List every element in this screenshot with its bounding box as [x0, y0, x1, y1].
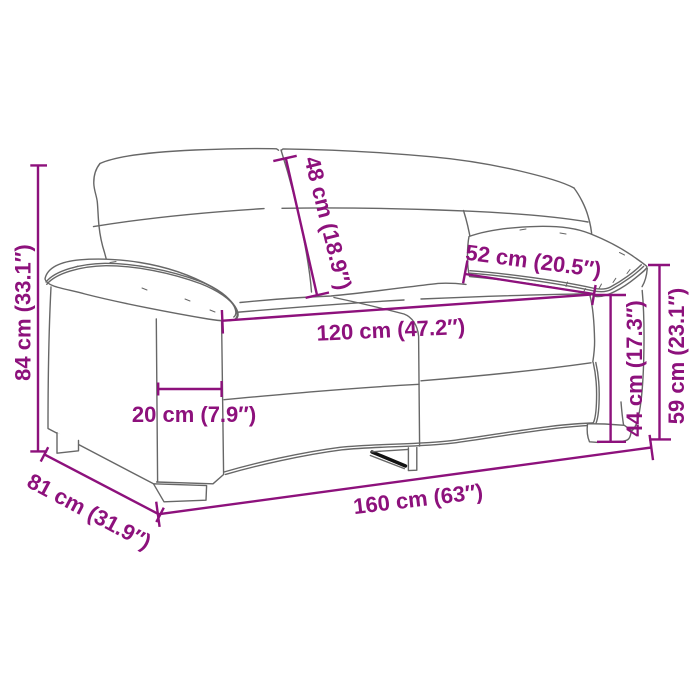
svg-text:59 cm (23.1″): 59 cm (23.1″): [664, 288, 689, 425]
svg-text:84 cm (33.1″): 84 cm (33.1″): [10, 244, 35, 381]
svg-text:20 cm (7.9″): 20 cm (7.9″): [132, 402, 256, 427]
svg-text:44 cm (17.3″): 44 cm (17.3″): [622, 300, 647, 437]
